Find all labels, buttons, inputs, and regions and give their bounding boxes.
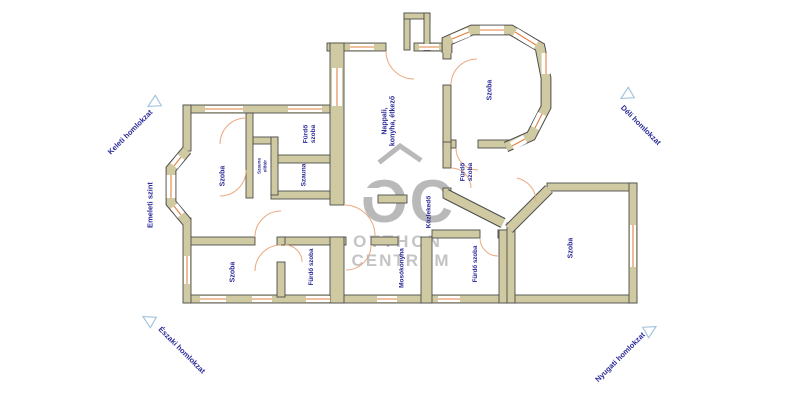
room-label-furdo-szoba-4: Fürdő szoba <box>472 245 479 282</box>
room-label-furdo-szoba-3-text: Fürdő szoba <box>308 248 315 285</box>
floor-plan-page: OC OTTHON CENTRUM <box>0 0 800 410</box>
room-label-szauna-eloter: Szaunaelőtér <box>257 158 268 174</box>
facade-label-emeleti: Emeleti szint <box>146 182 155 228</box>
room-label-furdo-szoba-1-text: szoba <box>310 124 317 143</box>
room-label-szoba-bay: Szoba <box>486 80 493 101</box>
room-label-szauna-eloter-text: előtér <box>262 160 267 173</box>
facade-label-keleti: Keleti homlokzat <box>106 107 155 156</box>
room-label-furdo-szoba-2-text: Fürdő <box>459 163 466 181</box>
top-right-bay-wall <box>447 30 546 147</box>
floor-plan-canvas: OC OTTHON CENTRUM <box>0 0 800 410</box>
room-label-furdo-szoba-4-text: Fürdő szoba <box>472 245 479 282</box>
room-label-furdo-szoba-2-text: szoba <box>467 162 474 181</box>
room-label-kozlekedo: Közlekedő <box>425 196 432 229</box>
room-label-furdo-szoba-3: Fürdő szoba <box>308 248 315 285</box>
facade-label-deli: Déli homlokzat <box>619 103 663 147</box>
room-label-nappali-text: Nappali, <box>381 107 388 134</box>
facade-marker-deli <box>618 87 634 103</box>
watermark-roof-icon <box>381 146 419 161</box>
room-label-nappali: Nappali,konyha, étkező <box>381 96 396 146</box>
room-label-szoba-left-text: Szoba <box>219 166 226 187</box>
room-label-furdo-szoba-1: Fürdőszoba <box>302 124 317 143</box>
room-label-furdo-szoba-2: Fürdőszoba <box>459 162 474 181</box>
facade-label-deli-text: Déli homlokzat <box>619 103 663 147</box>
room-label-szoba-right-text: Szoba <box>567 238 574 259</box>
facade-label-eszaki-text: Északi homlokzat <box>157 325 208 376</box>
facade-label-eszaki: Északi homlokzat <box>157 325 208 376</box>
facade-label-emeleti-text: Emeleti szint <box>146 182 155 228</box>
room-label-szoba-bottom-text: Szoba <box>229 262 236 283</box>
facade-label-nyugati: Nyugati homlokzat <box>593 330 647 384</box>
room-label-szoba-bay-text: Szoba <box>486 80 493 101</box>
room-label-szauna-eloter-text: Szauna <box>257 158 262 174</box>
room-label-furdo-szoba-1-text: Fürdő <box>302 125 309 143</box>
room-label-szoba-left: Szoba <box>219 166 226 187</box>
watermark-logo-notch <box>361 188 378 197</box>
room-label-mosokonyha-text: Mosókonyha <box>398 248 405 288</box>
room-label-szoba-bottom: Szoba <box>229 262 236 283</box>
facade-label-keleti-text: Keleti homlokzat <box>106 107 155 156</box>
facade-label-nyugati-text: Nyugati homlokzat <box>593 330 647 384</box>
room-chamfer-wall <box>509 189 549 229</box>
room-label-kozlekedo-text: Közlekedő <box>425 196 432 229</box>
watermark-logo: OC <box>361 168 455 235</box>
room-label-szauna-text: Szauna <box>300 163 307 186</box>
room-label-nappali-text: konyha, étkező <box>390 96 397 146</box>
facade-marker-eszaki <box>140 311 156 327</box>
room-label-szoba-right: Szoba <box>567 238 574 259</box>
room-label-szauna: Szauna <box>300 163 307 186</box>
room-label-mosokonyha: Mosókonyha <box>398 248 405 288</box>
